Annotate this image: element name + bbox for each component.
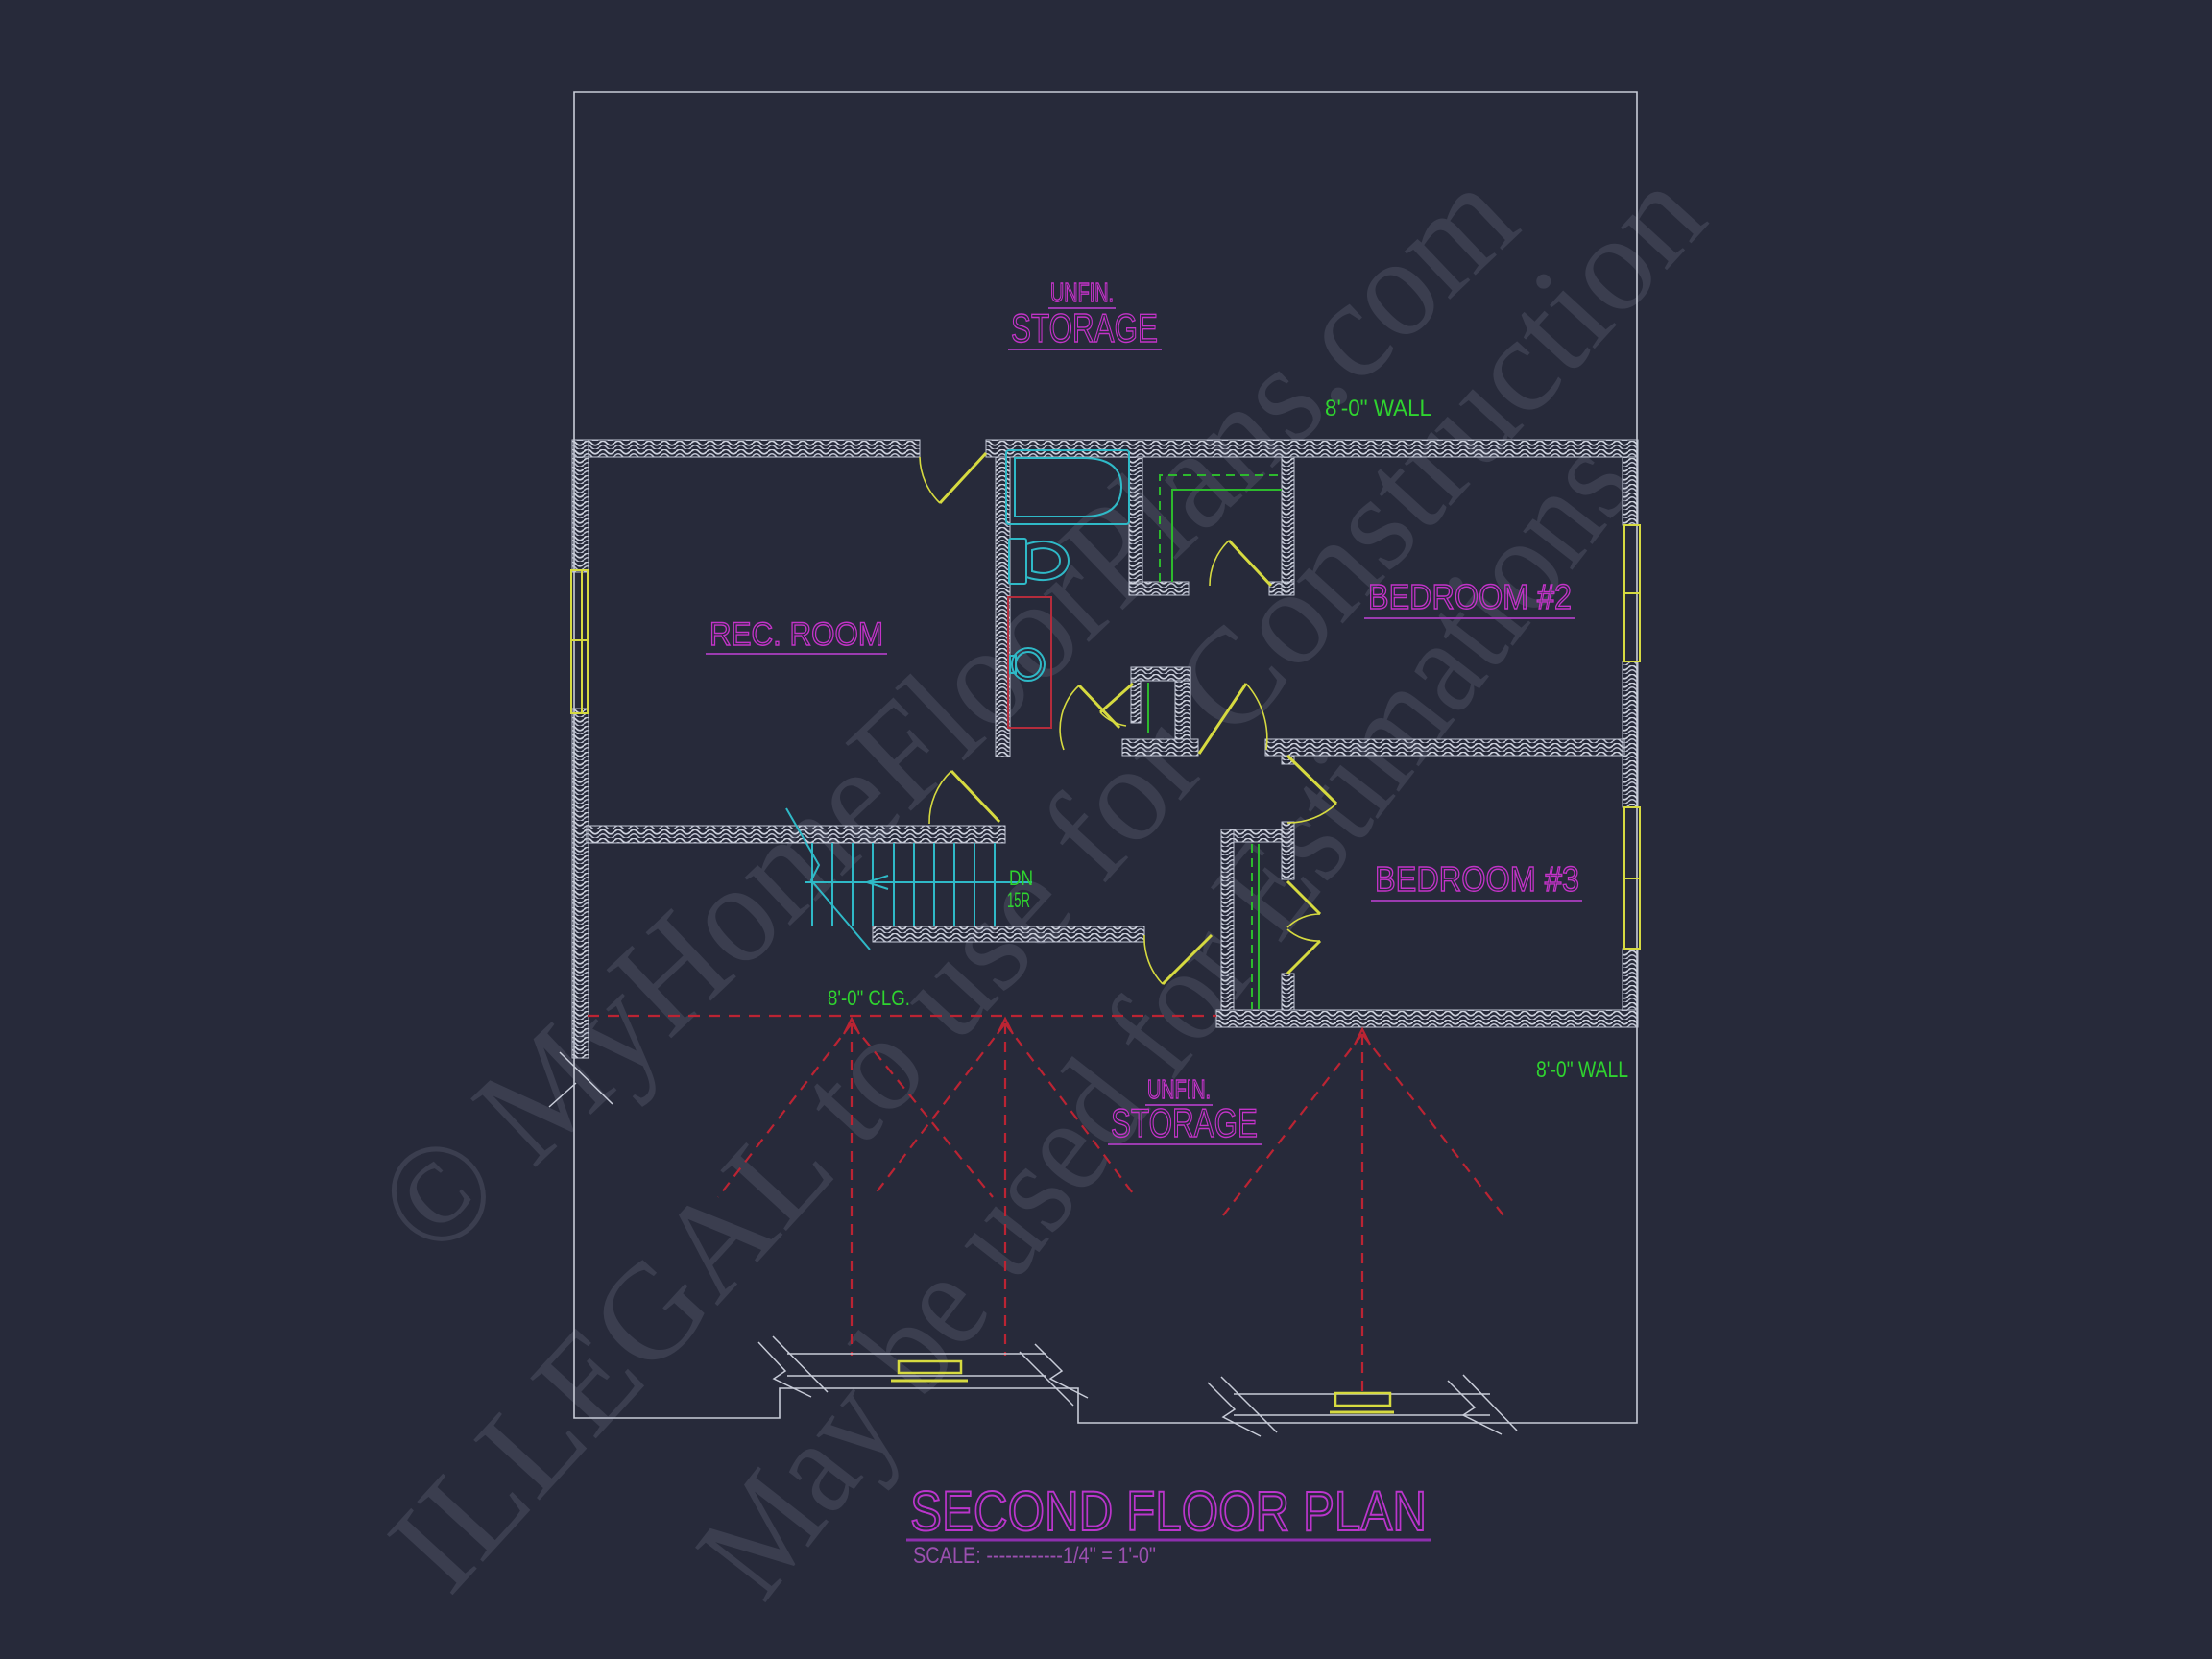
- svg-text:15R: 15R: [1007, 888, 1030, 912]
- svg-text:REC. ROOM: REC. ROOM: [709, 616, 883, 653]
- svg-text:8'-0" WALL: 8'-0" WALL: [1325, 396, 1431, 421]
- svg-text:STORAGE: STORAGE: [1011, 305, 1158, 350]
- svg-text:BEDROOM #2: BEDROOM #2: [1368, 577, 1572, 616]
- svg-text:SECOND FLOOR PLAN: SECOND FLOOR PLAN: [910, 1480, 1427, 1543]
- svg-text:STORAGE: STORAGE: [1111, 1100, 1258, 1145]
- svg-text:UNFIN.: UNFIN.: [1050, 277, 1114, 307]
- svg-text:8'-0" WALL: 8'-0" WALL: [1536, 1057, 1628, 1083]
- svg-text:SCALE: ------------1/4" = 1'-0: SCALE: ------------1/4" = 1'-0": [913, 1543, 1156, 1569]
- svg-text:BEDROOM #3: BEDROOM #3: [1375, 859, 1579, 899]
- svg-text:DN: DN: [1009, 866, 1033, 890]
- svg-text:8'-0" CLG.: 8'-0" CLG.: [828, 986, 910, 1010]
